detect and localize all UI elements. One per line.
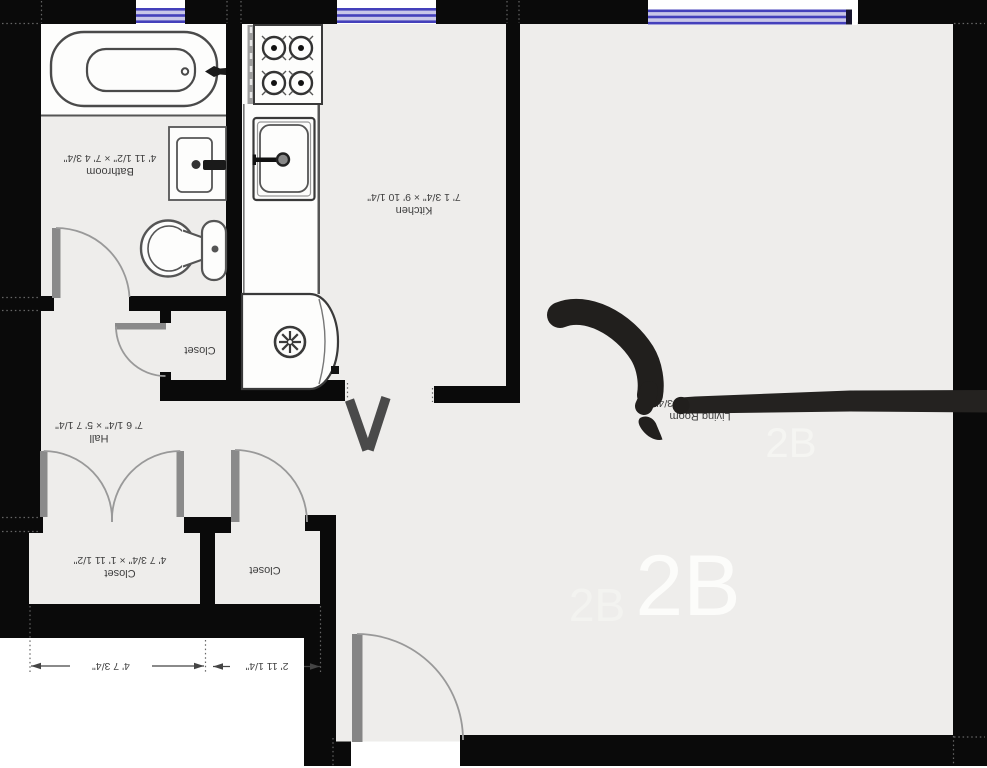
svg-text:2B: 2B (635, 538, 740, 634)
svg-text:Closet: Closet (249, 564, 280, 576)
svg-text:2B: 2B (765, 419, 816, 466)
svg-text:Bathroom: Bathroom (86, 165, 134, 177)
svg-text:7' 1 3/4" × 9' 10 1/4": 7' 1 3/4" × 9' 10 1/4" (367, 191, 461, 203)
svg-text:4' 7 3/4" × 1' 11 1/2": 4' 7 3/4" × 1' 11 1/2" (73, 554, 166, 566)
svg-text:Kitchen: Kitchen (396, 204, 433, 216)
svg-text:4' 11 1/2" × 7' 4 3/4": 4' 11 1/2" × 7' 4 3/4" (63, 152, 156, 164)
svg-text:Closet: Closet (104, 567, 135, 579)
svg-text:2' 11 1/4": 2' 11 1/4" (245, 660, 288, 672)
svg-text:4' 7 3/4": 4' 7 3/4" (92, 660, 130, 672)
svg-text:Closet: Closet (184, 344, 215, 356)
svg-text:7' 6 1/4" × 5' 7 1/4": 7' 6 1/4" × 5' 7 1/4" (55, 419, 143, 431)
svg-text:Hall: Hall (90, 432, 109, 444)
svg-text:2B: 2B (569, 579, 625, 631)
